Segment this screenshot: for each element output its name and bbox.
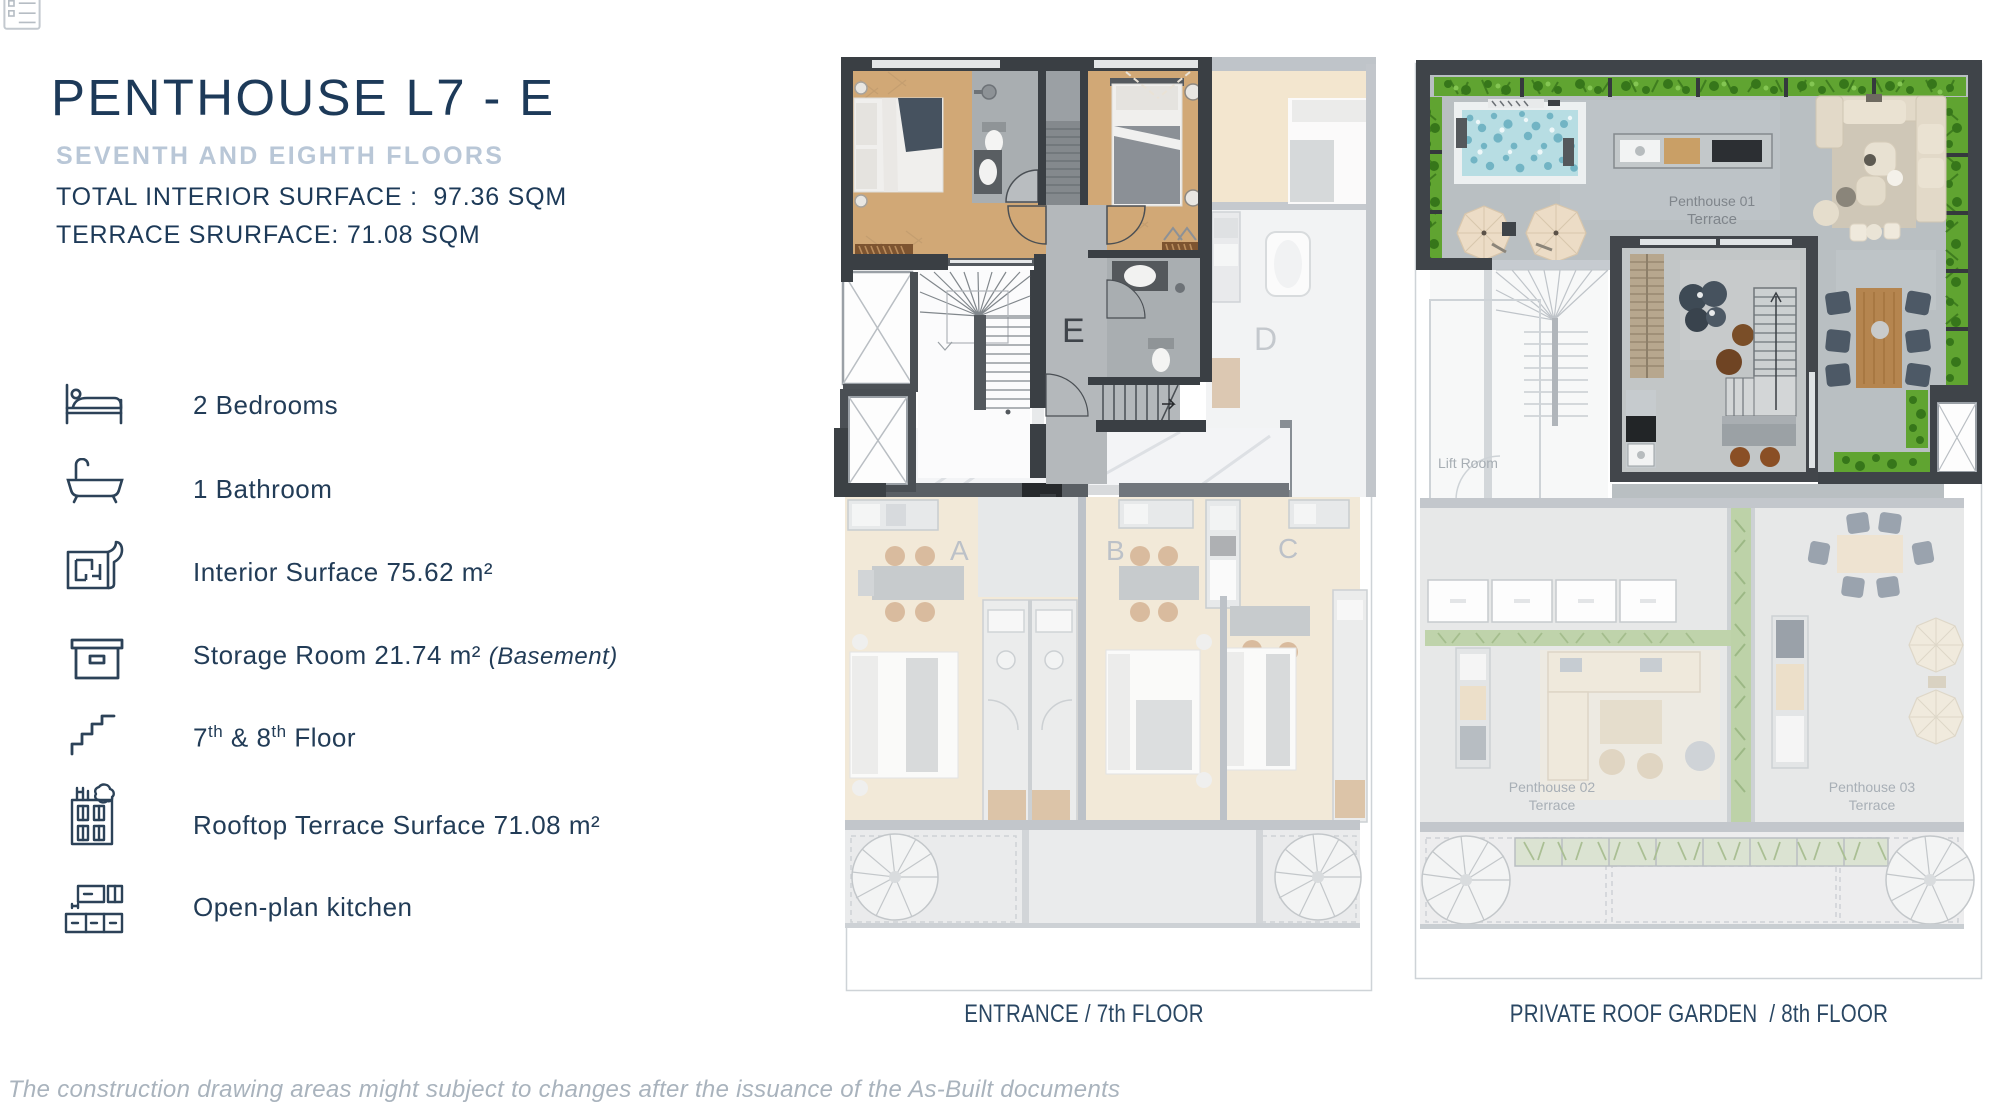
svg-text:Penthouse 03: Penthouse 03 <box>1829 779 1916 795</box>
svg-text:Penthouse 02: Penthouse 02 <box>1509 779 1596 795</box>
svg-text:B: B <box>1106 535 1125 566</box>
svg-text:Terrace: Terrace <box>1687 211 1737 228</box>
svg-text:C: C <box>1278 533 1298 564</box>
svg-text:A: A <box>950 535 969 566</box>
svg-text:Penthouse 01: Penthouse 01 <box>1669 193 1756 209</box>
svg-text:E: E <box>1062 312 1085 350</box>
svg-text:D: D <box>1254 321 1277 357</box>
svg-text:Terrace: Terrace <box>1529 797 1576 813</box>
svg-text:Terrace: Terrace <box>1849 797 1896 813</box>
svg-text:Lift Room: Lift Room <box>1438 455 1498 471</box>
